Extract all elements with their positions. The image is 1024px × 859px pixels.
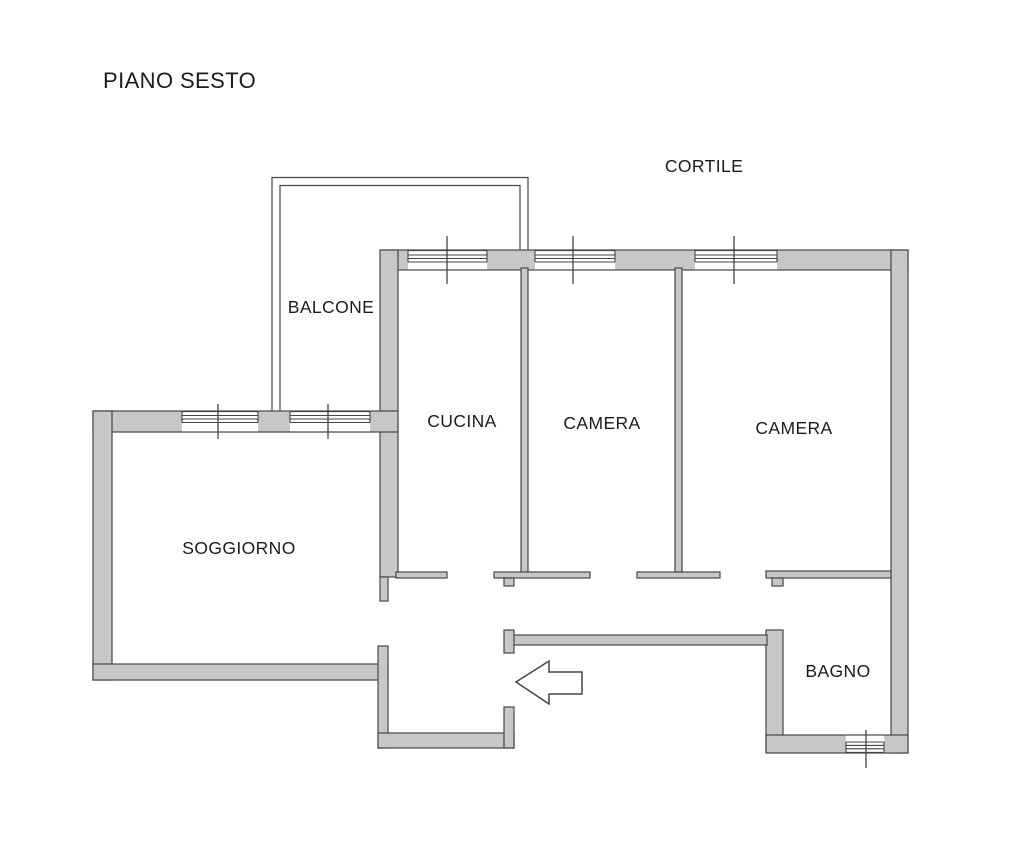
wall-camera1-camera2 bbox=[675, 268, 682, 572]
wall-divider-leg bbox=[380, 577, 388, 601]
wall-cucina-camera1 bbox=[521, 268, 528, 572]
wall-soggiorno-bottom bbox=[93, 664, 388, 680]
window-camera2 bbox=[695, 236, 777, 284]
wall-bagno-left bbox=[766, 630, 783, 752]
wall-camera1-camera2-base bbox=[637, 572, 720, 578]
window-bagno bbox=[846, 730, 884, 768]
entry-arrow-icon bbox=[516, 661, 582, 704]
room-label-bagno: BAGNO bbox=[805, 661, 870, 681]
room-label-camera1: CAMERA bbox=[563, 413, 640, 433]
room-label-camera2: CAMERA bbox=[755, 418, 832, 438]
wall-bagno-bottom bbox=[766, 735, 908, 753]
balcony-parapet bbox=[272, 178, 528, 412]
wall-bagno-top bbox=[766, 571, 891, 578]
wall-hall-door-stub bbox=[504, 578, 514, 586]
wall-vestibule-bottom bbox=[378, 733, 514, 748]
wall-bagno-door-stub bbox=[772, 578, 783, 586]
wall-cucina-camera1-base bbox=[494, 572, 590, 578]
wall-vestibule-entry-stub bbox=[504, 707, 514, 748]
room-label-soggiorno: SOGGIORNO bbox=[182, 538, 295, 558]
interior-walls bbox=[396, 268, 891, 653]
outdoor-label-cortile: CORTILE bbox=[665, 156, 743, 176]
wall-soggiorno-left bbox=[93, 411, 112, 680]
page-title: PIANO SESTO bbox=[103, 68, 256, 93]
floor-plan-page: PIANO SESTO CORTILE BALCONE CUCINA CAMER… bbox=[0, 0, 1024, 859]
room-label-balcone: BALCONE bbox=[288, 297, 374, 317]
window-cucina bbox=[408, 236, 487, 284]
wall-corridor-end-cap bbox=[504, 630, 514, 653]
room-label-cucina: CUCINA bbox=[427, 411, 497, 431]
wall-corridor bbox=[509, 635, 767, 645]
floor-plan-drawing: PIANO SESTO CORTILE BALCONE CUCINA CAMER… bbox=[0, 0, 1024, 859]
window-camera1 bbox=[535, 236, 615, 284]
wall-right bbox=[891, 250, 908, 753]
balcony-parapet-outer bbox=[272, 178, 528, 412]
window-soggiorno-1 bbox=[182, 404, 258, 439]
labels: PIANO SESTO CORTILE BALCONE CUCINA CAMER… bbox=[103, 68, 871, 681]
exterior-walls bbox=[93, 250, 908, 753]
window-soggiorno-2 bbox=[290, 404, 370, 439]
wall-cucina-bottom-stub bbox=[396, 572, 447, 578]
